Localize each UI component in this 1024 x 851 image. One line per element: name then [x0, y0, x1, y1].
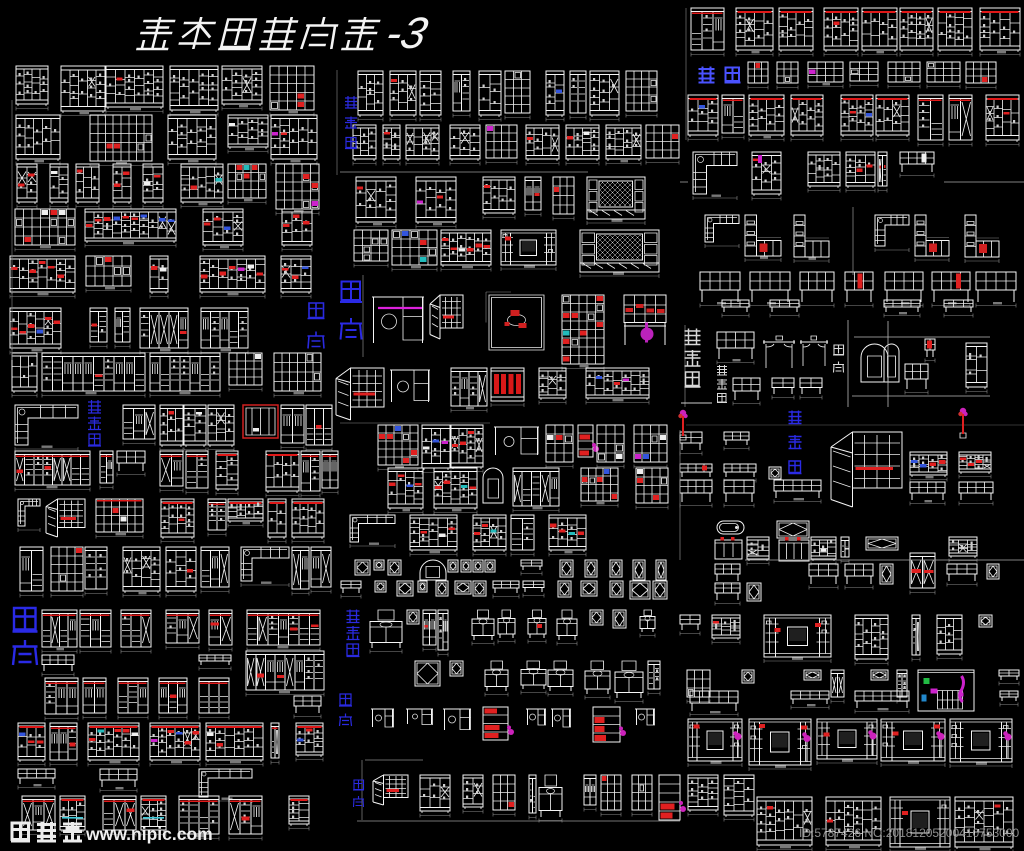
svg-text:ID:5787426 NO:2018120520041075: ID:5787426 NO:20181205200410753000	[799, 826, 1020, 840]
svg-text:www.nipic.com: www.nipic.com	[85, 824, 213, 844]
